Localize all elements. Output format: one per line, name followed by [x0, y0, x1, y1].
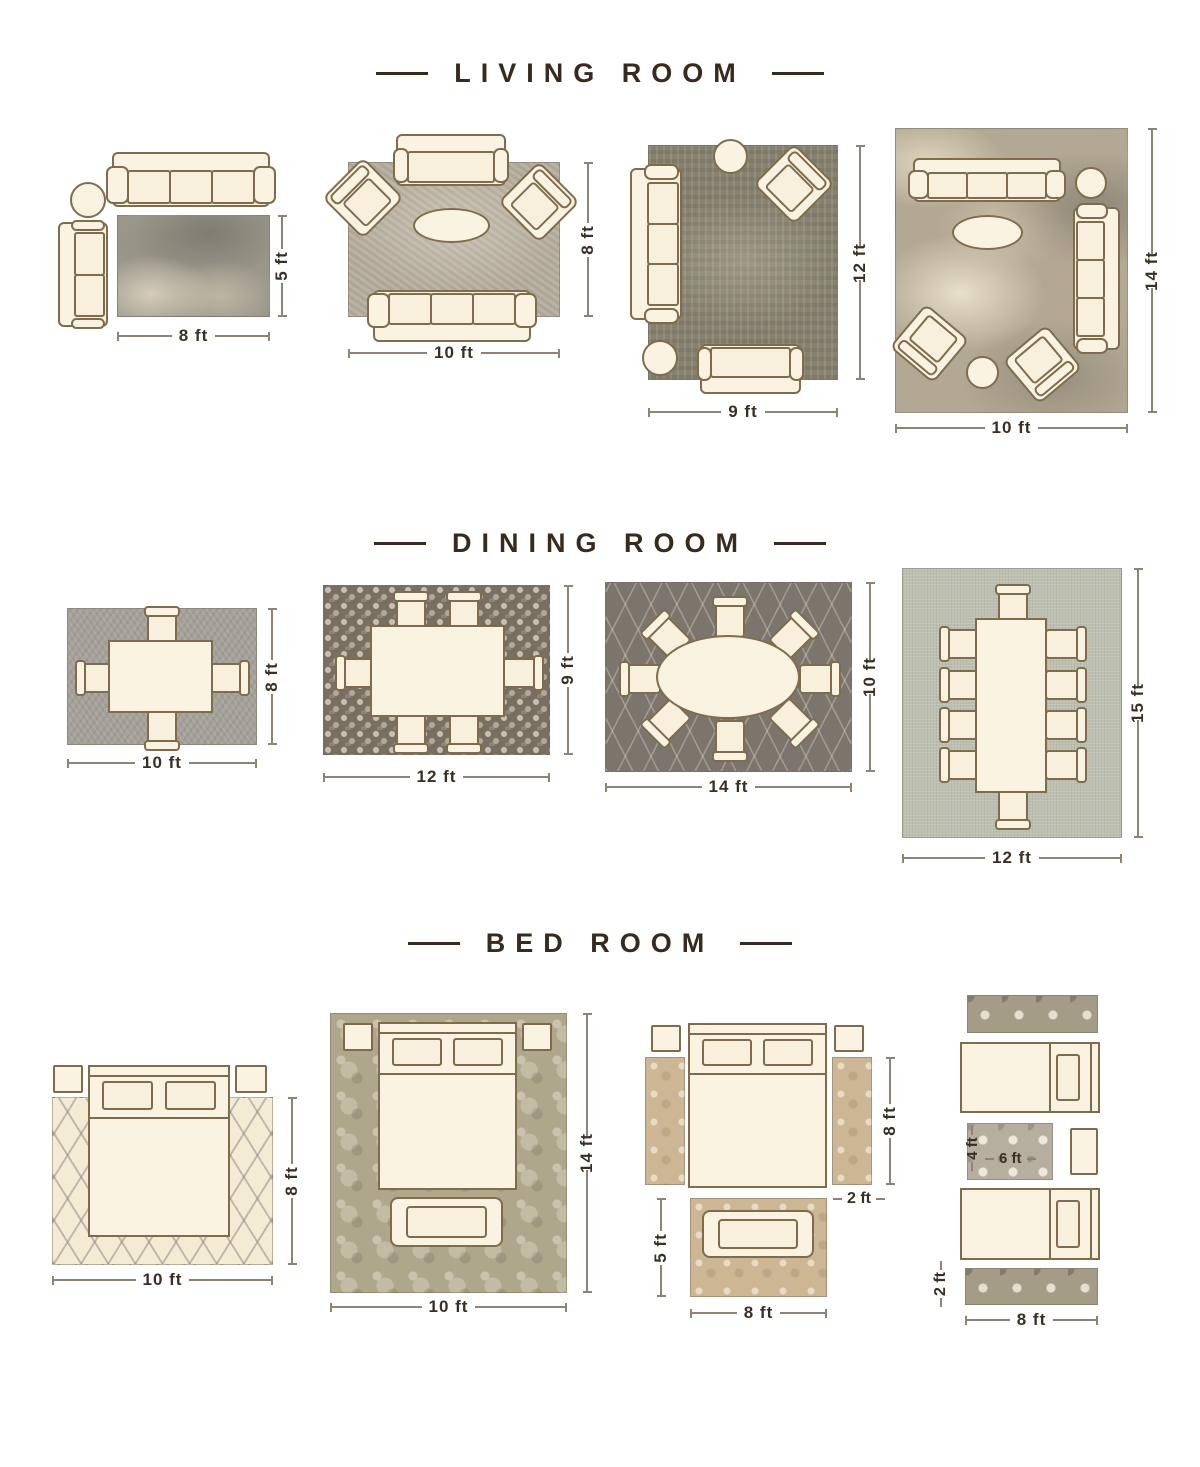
- oval-dining-table-icon: [656, 635, 800, 719]
- side-table-icon: [642, 340, 678, 376]
- dining-chair-icon: [147, 709, 177, 747]
- dining-table-icon: [370, 625, 505, 717]
- loveseat-icon: [700, 344, 801, 394]
- dining-room-title: DINING ROOM: [0, 528, 1200, 559]
- sofa-icon: [630, 168, 682, 320]
- dim-height: 5 ft: [271, 215, 293, 317]
- dim-height: 12 ft: [849, 145, 871, 380]
- section-title-text: BED ROOM: [486, 928, 715, 959]
- section-title-text: LIVING ROOM: [454, 58, 746, 89]
- bed-icon: [378, 1022, 517, 1190]
- nightstand-icon: [235, 1065, 267, 1093]
- sofa-icon: [373, 290, 531, 342]
- twin-bed-icon: [960, 1188, 1100, 1260]
- dim-height: 14 ft: [576, 1013, 598, 1293]
- bed-runner-rug: [645, 1057, 685, 1185]
- dim-runner-height: 2 ft: [931, 1261, 951, 1307]
- dining-chair-icon: [1045, 670, 1083, 700]
- dim-width: 10 ft: [52, 1270, 273, 1290]
- dining-chair-icon: [449, 712, 479, 750]
- side-table-icon: [1075, 167, 1107, 199]
- bed-runner-rug: [832, 1057, 872, 1185]
- dining-chair-icon: [208, 663, 246, 693]
- coffee-table-icon: [413, 208, 490, 243]
- dim-width: 14 ft: [605, 777, 852, 797]
- loveseat-icon: [396, 134, 506, 186]
- dining-chair-icon: [715, 600, 745, 638]
- dim-width: 12 ft: [902, 848, 1122, 868]
- dining-chair-icon: [396, 712, 426, 750]
- title-dash-left: [376, 72, 428, 75]
- nightstand-icon: [1070, 1128, 1098, 1175]
- title-dash-right: [774, 542, 826, 545]
- nightstand-icon: [53, 1065, 83, 1093]
- living-rug-5x8: [117, 215, 270, 317]
- dim-height: 8 ft: [281, 1097, 303, 1265]
- dim-width: 8 ft: [690, 1303, 827, 1323]
- dim-height: 8 ft: [577, 162, 599, 317]
- dim-width: 10 ft: [348, 343, 560, 363]
- side-table-icon: [713, 139, 748, 174]
- bed-runner-rug: [965, 1268, 1098, 1305]
- dining-chair-icon: [1045, 750, 1083, 780]
- nightstand-icon: [522, 1023, 552, 1051]
- dim-width: 10 ft: [330, 1297, 567, 1317]
- dining-table-icon: [975, 618, 1047, 793]
- twin-bed-icon: [960, 1042, 1100, 1113]
- dim-center-rug-width: 6 ft: [985, 1150, 1036, 1167]
- title-dash-left: [374, 542, 426, 545]
- title-dash-right: [772, 72, 824, 75]
- coffee-table-icon: [952, 215, 1023, 250]
- dining-chair-icon: [1045, 710, 1083, 740]
- dining-chair-icon: [715, 720, 745, 758]
- loveseat-icon: [58, 222, 108, 327]
- nightstand-icon: [651, 1025, 681, 1052]
- dining-chair-icon: [998, 788, 1028, 826]
- dim-width: 10 ft: [895, 418, 1128, 438]
- dining-chair-icon: [1045, 629, 1083, 659]
- bed-icon: [688, 1023, 827, 1188]
- dim-height: 8 ft: [261, 608, 283, 745]
- dim-width: 8 ft: [965, 1310, 1098, 1330]
- bed-runner-rug: [967, 995, 1098, 1033]
- title-dash-right: [740, 942, 792, 945]
- dim-runner-width: 2 ft: [833, 1190, 885, 1208]
- bed-room-title: BED ROOM: [0, 928, 1200, 959]
- sofa-icon: [913, 158, 1061, 202]
- side-table-icon: [966, 356, 999, 389]
- dim-runner-height: 8 ft: [879, 1057, 901, 1185]
- nightstand-icon: [834, 1025, 864, 1052]
- title-dash-left: [408, 942, 460, 945]
- sofa-icon: [112, 152, 270, 207]
- dim-height: 15 ft: [1127, 568, 1149, 838]
- sofa-icon: [1073, 207, 1120, 350]
- nightstand-icon: [343, 1023, 373, 1051]
- dim-foot-rug-height: 5 ft: [650, 1198, 672, 1297]
- side-table-icon: [70, 182, 106, 218]
- bench-icon: [702, 1210, 814, 1258]
- dim-height: 10 ft: [859, 582, 881, 772]
- dining-chair-icon: [502, 658, 540, 688]
- dim-width: 8 ft: [117, 326, 270, 346]
- dim-center-rug-height: 4 ft: [962, 1126, 982, 1171]
- bed-icon: [88, 1065, 230, 1237]
- rug-size-guide: LIVING ROOM 8 ft 5 ft 10 ft 8 ft: [0, 0, 1200, 1467]
- dim-width: 10 ft: [67, 753, 257, 773]
- section-title-text: DINING ROOM: [452, 528, 748, 559]
- dim-height: 9 ft: [557, 585, 579, 755]
- bench-icon: [390, 1197, 503, 1247]
- dim-width: 9 ft: [648, 402, 838, 422]
- dining-table-icon: [108, 640, 213, 713]
- dining-chair-icon: [799, 664, 837, 694]
- dim-height: 14 ft: [1141, 128, 1163, 413]
- living-room-title: LIVING ROOM: [0, 58, 1200, 89]
- dim-width: 12 ft: [323, 767, 550, 787]
